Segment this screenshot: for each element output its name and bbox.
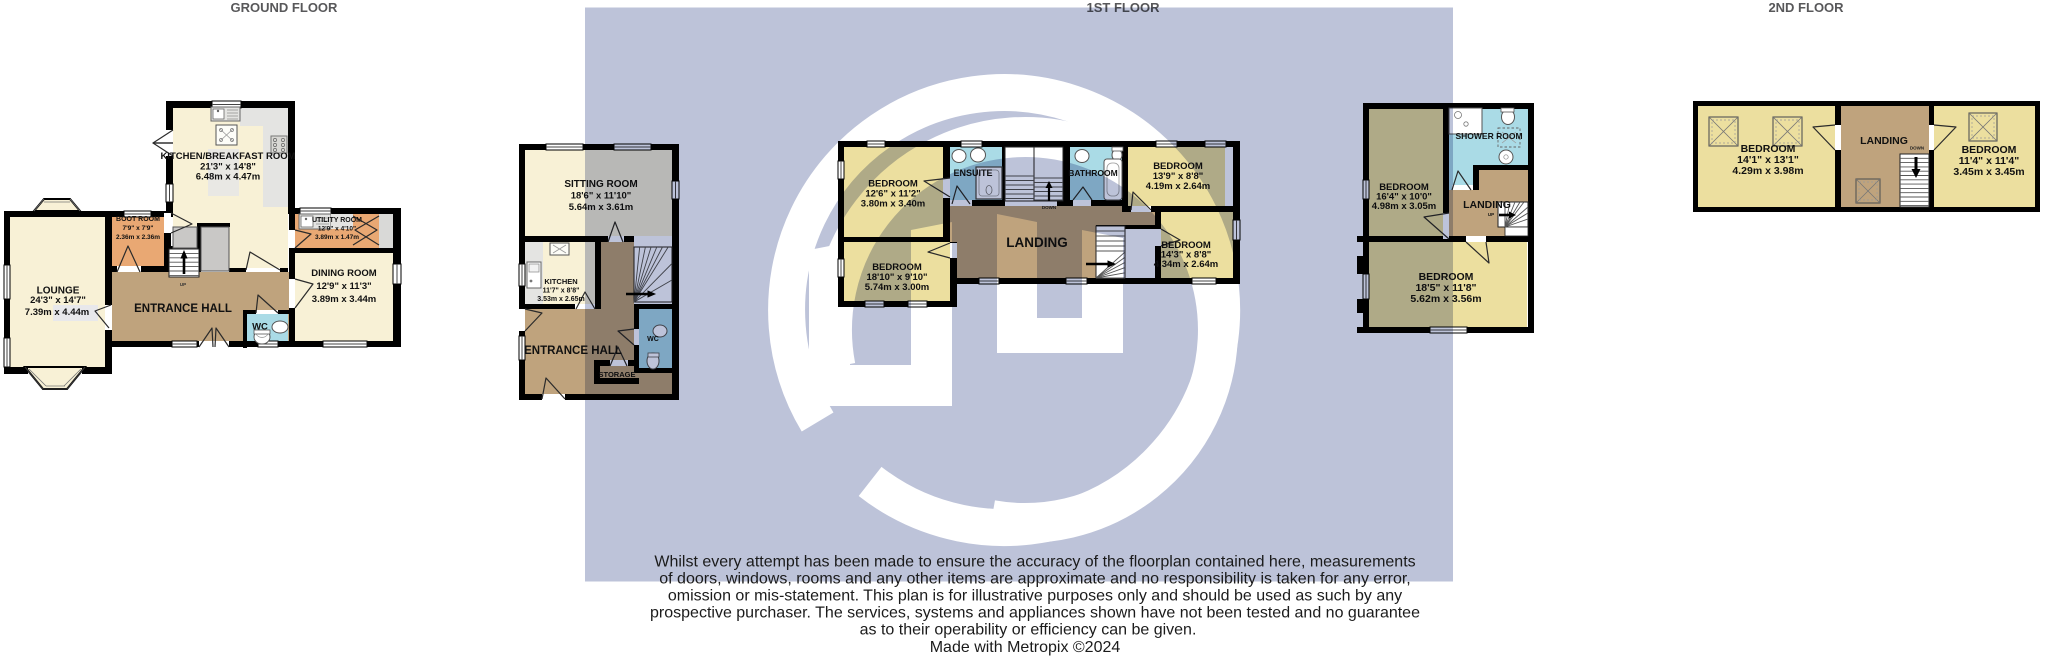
svg-text:UP: UP bbox=[1488, 212, 1494, 217]
svg-text:24'3" x 14'7": 24'3" x 14'7" bbox=[30, 295, 86, 306]
svg-text:3.53m x 2.65m: 3.53m x 2.65m bbox=[537, 296, 584, 303]
svg-text:7'9" x 7'9": 7'9" x 7'9" bbox=[123, 225, 154, 232]
svg-text:KITCHEN: KITCHEN bbox=[544, 277, 577, 286]
svg-text:3.89m x 3.44m: 3.89m x 3.44m bbox=[312, 294, 376, 305]
svg-text:LANDING: LANDING bbox=[1860, 135, 1908, 147]
svg-text:12'9" x 11'3": 12'9" x 11'3" bbox=[316, 281, 371, 292]
svg-text:12'9" x 4'10": 12'9" x 4'10" bbox=[318, 226, 356, 233]
svg-text:UP: UP bbox=[180, 282, 186, 287]
svg-text:as to their operability or eff: as to their operability or efficiency ca… bbox=[860, 622, 1197, 639]
svg-text:ENTRANCE HALL: ENTRANCE HALL bbox=[134, 303, 232, 315]
svg-text:3.89m x 1.47m: 3.89m x 1.47m bbox=[315, 234, 359, 241]
svg-text:WC: WC bbox=[252, 322, 268, 333]
svg-text:11'7" x 8'8": 11'7" x 8'8" bbox=[543, 288, 580, 295]
svg-text:UTILITY ROOM: UTILITY ROOM bbox=[312, 217, 362, 224]
svg-text:Whilst every attempt has been: Whilst every attempt has been made to en… bbox=[654, 554, 1415, 571]
svg-text:7.39m x 4.44m: 7.39m x 4.44m bbox=[25, 307, 89, 318]
svg-text:BOOT ROOM: BOOT ROOM bbox=[116, 216, 160, 223]
svg-text:SHOWER ROOM: SHOWER ROOM bbox=[1455, 131, 1522, 141]
svg-text:omission or mis-statement. Thi: omission or mis-statement. This plan is … bbox=[668, 588, 1402, 605]
svg-text:DOWN: DOWN bbox=[1910, 146, 1924, 151]
svg-text:4.29m x 3.98m: 4.29m x 3.98m bbox=[1732, 165, 1803, 177]
svg-text:Made with Metropix ©2024: Made with Metropix ©2024 bbox=[930, 639, 1121, 656]
svg-text:GROUND FLOOR: GROUND FLOOR bbox=[231, 0, 338, 15]
svg-text:2ND FLOOR: 2ND FLOOR bbox=[1768, 0, 1844, 15]
svg-text:3.45m x 3.45m: 3.45m x 3.45m bbox=[1953, 166, 2024, 178]
svg-text:prospective purchaser. The ser: prospective purchaser. The services, sys… bbox=[650, 605, 1420, 622]
svg-text:2.36m x 2.36m: 2.36m x 2.36m bbox=[116, 234, 160, 241]
svg-text:LANDING: LANDING bbox=[1463, 199, 1511, 211]
svg-text:of doors, windows, rooms and a: of doors, windows, rooms and any other i… bbox=[659, 571, 1410, 588]
svg-text:6.48m x 4.47m: 6.48m x 4.47m bbox=[196, 172, 260, 183]
svg-text:KITCHEN/BREAKFAST ROOM: KITCHEN/BREAKFAST ROOM bbox=[160, 151, 295, 162]
svg-text:DINING ROOM: DINING ROOM bbox=[311, 268, 377, 279]
